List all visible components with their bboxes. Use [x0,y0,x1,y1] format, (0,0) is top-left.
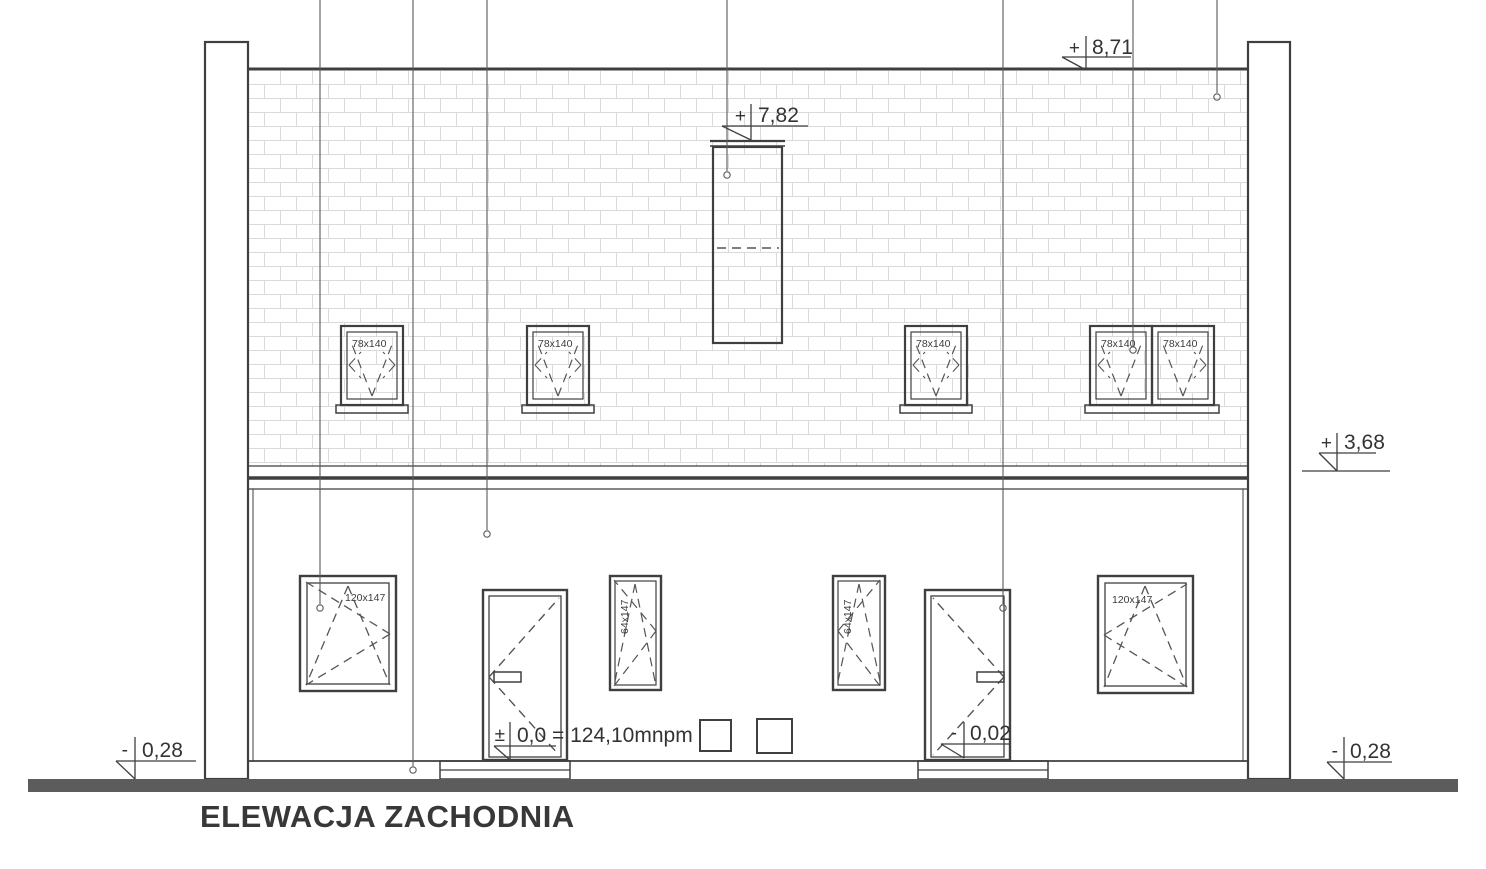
elevation-marker-eaves: + 3,68 [1302,431,1390,471]
marker-sign: - [122,740,128,761]
marker-sign: - [951,723,957,744]
marker-value: 0,0 = 124,10mnpm [517,724,693,747]
door-right [918,590,1048,779]
large-window-label: 120x147 [345,592,385,604]
vent-right [757,719,792,753]
window-large-right: 120x147 [1098,576,1193,693]
window-narrow-right: 64x147 [833,576,885,690]
window-narrow-left: 64x147 [610,576,661,690]
elevation-marker-ridge: + 8,71 [1062,36,1133,70]
marker-value: 3,68 [1344,431,1385,454]
drawing-title: ELEWACJA ZACHODNIA [200,799,575,834]
marker-value: 0,28 [1350,740,1391,763]
marker-value: 7,82 [758,104,799,127]
left-pillar [205,42,248,779]
elevation-drawing: 78x140 78x140 78x140 78x140 [0,0,1486,869]
storey-band [248,466,1248,489]
marker-sign: + [1321,433,1332,454]
marker-sign: + [735,106,746,127]
vent-left [700,720,731,751]
elevation-marker-right-door: - 0,02 [941,722,1011,758]
right-pillar [1248,42,1290,779]
marker-sign: + [1069,38,1080,59]
window-large-left: 120x147 [300,576,396,691]
door-handle [494,672,521,682]
ground-terrain-bar [28,779,1458,792]
large-window-label: 120x147 [1112,594,1152,606]
attic-window-label: 78x140 [1163,338,1198,350]
elevation-marker-terrain-right: - 0,28 [1327,737,1392,779]
drawing-sheet: 78x140 78x140 78x140 78x140 [0,0,1486,869]
elevation-marker-entrance-zero: ± 0,0 = 124,10mnpm [494,722,693,760]
elevation-marker-terrain-left: - 0,28 [116,737,196,779]
attic-window-label: 78x140 [352,338,387,350]
brick-gable-wall [248,71,1248,466]
narrow-window-label: 64x147 [842,599,854,634]
attic-window-label: 78x140 [538,338,573,350]
narrow-window-label: 64x147 [619,599,631,634]
marker-sign: - [1332,741,1338,762]
door-left [440,590,570,779]
attic-window-label: 78x140 [916,338,951,350]
marker-value: 0,28 [142,739,183,762]
marker-value: 8,71 [1092,36,1133,59]
marker-sign: ± [495,725,505,746]
marker-value: 0,02 [970,722,1011,745]
